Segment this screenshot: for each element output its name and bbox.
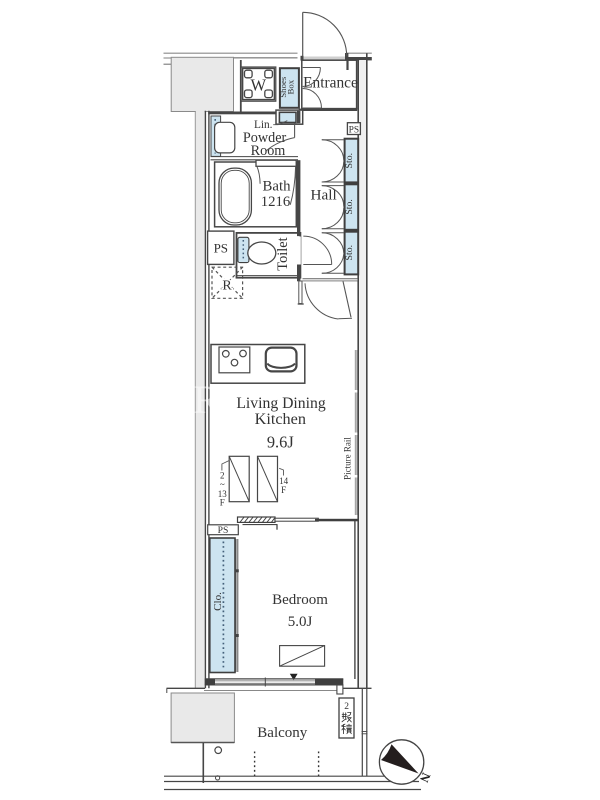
svg-text:Sto.: Sto. — [344, 153, 355, 169]
svg-text:9.6J: 9.6J — [267, 433, 294, 452]
svg-text:R: R — [193, 377, 220, 422]
svg-text:Sto.: Sto. — [344, 199, 355, 215]
svg-text:~: ~ — [220, 480, 225, 490]
svg-text:Toilet: Toilet — [275, 237, 291, 270]
svg-text:Bedroom: Bedroom — [272, 592, 328, 608]
svg-text:R: R — [222, 279, 232, 294]
svg-text:Box: Box — [286, 79, 296, 94]
svg-text:F: F — [220, 498, 225, 508]
svg-text:Hall: Hall — [311, 187, 337, 204]
svg-text:PS: PS — [218, 525, 229, 536]
svg-text:PS: PS — [349, 125, 359, 135]
svg-text:F: F — [281, 485, 286, 495]
svg-text:1216: 1216 — [261, 194, 291, 210]
svg-text:Sto.: Sto. — [344, 245, 355, 261]
svg-text:2: 2 — [344, 702, 349, 712]
svg-text:PS: PS — [214, 240, 228, 255]
svg-text:5.0J: 5.0J — [288, 614, 313, 630]
svg-text:Clo.: Clo. — [212, 592, 224, 611]
svg-text:Picture Rail: Picture Rail — [342, 437, 352, 480]
svg-text:W: W — [251, 76, 267, 95]
svg-text:Entrance: Entrance — [303, 75, 358, 92]
svg-text:Kitchen: Kitchen — [255, 410, 306, 428]
svg-text:Bath: Bath — [263, 178, 292, 194]
svg-text:Balcony: Balcony — [257, 725, 307, 741]
